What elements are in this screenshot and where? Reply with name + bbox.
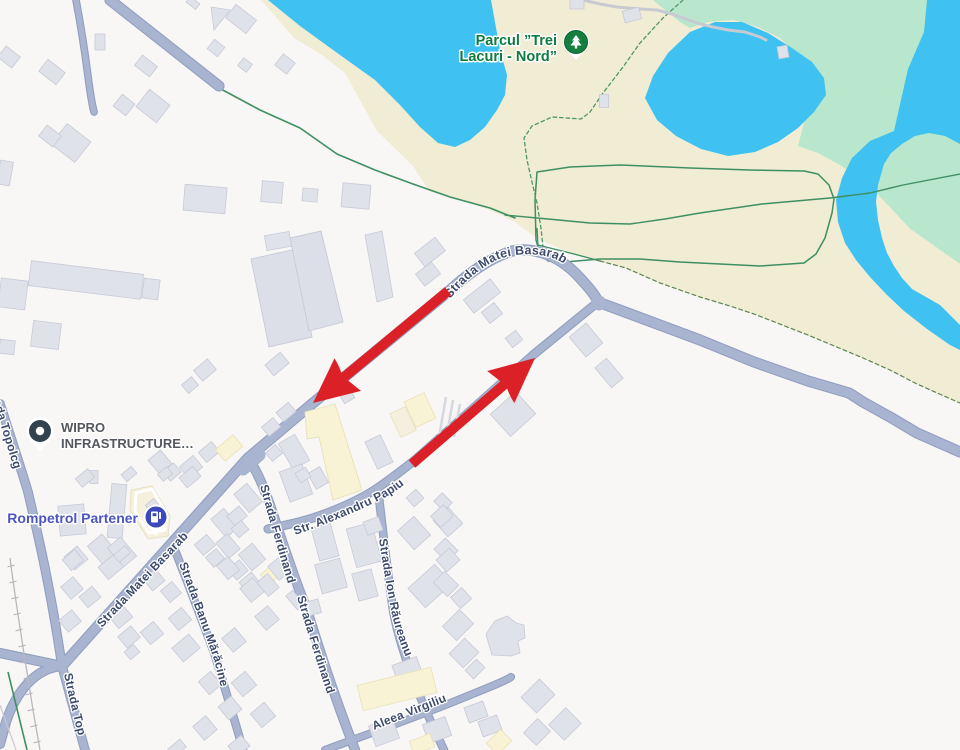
svg-text:Lacuri - Nord”: Lacuri - Nord” (460, 49, 557, 65)
svg-text:Rompetrol Partener: Rompetrol Partener (7, 510, 138, 526)
svg-text:INFRASTRUCTURE…: INFRASTRUCTURE… (61, 436, 194, 451)
svg-text:WIPRO: WIPRO (61, 420, 105, 435)
svg-text:Parcul ”Trei: Parcul ”Trei (476, 33, 557, 49)
